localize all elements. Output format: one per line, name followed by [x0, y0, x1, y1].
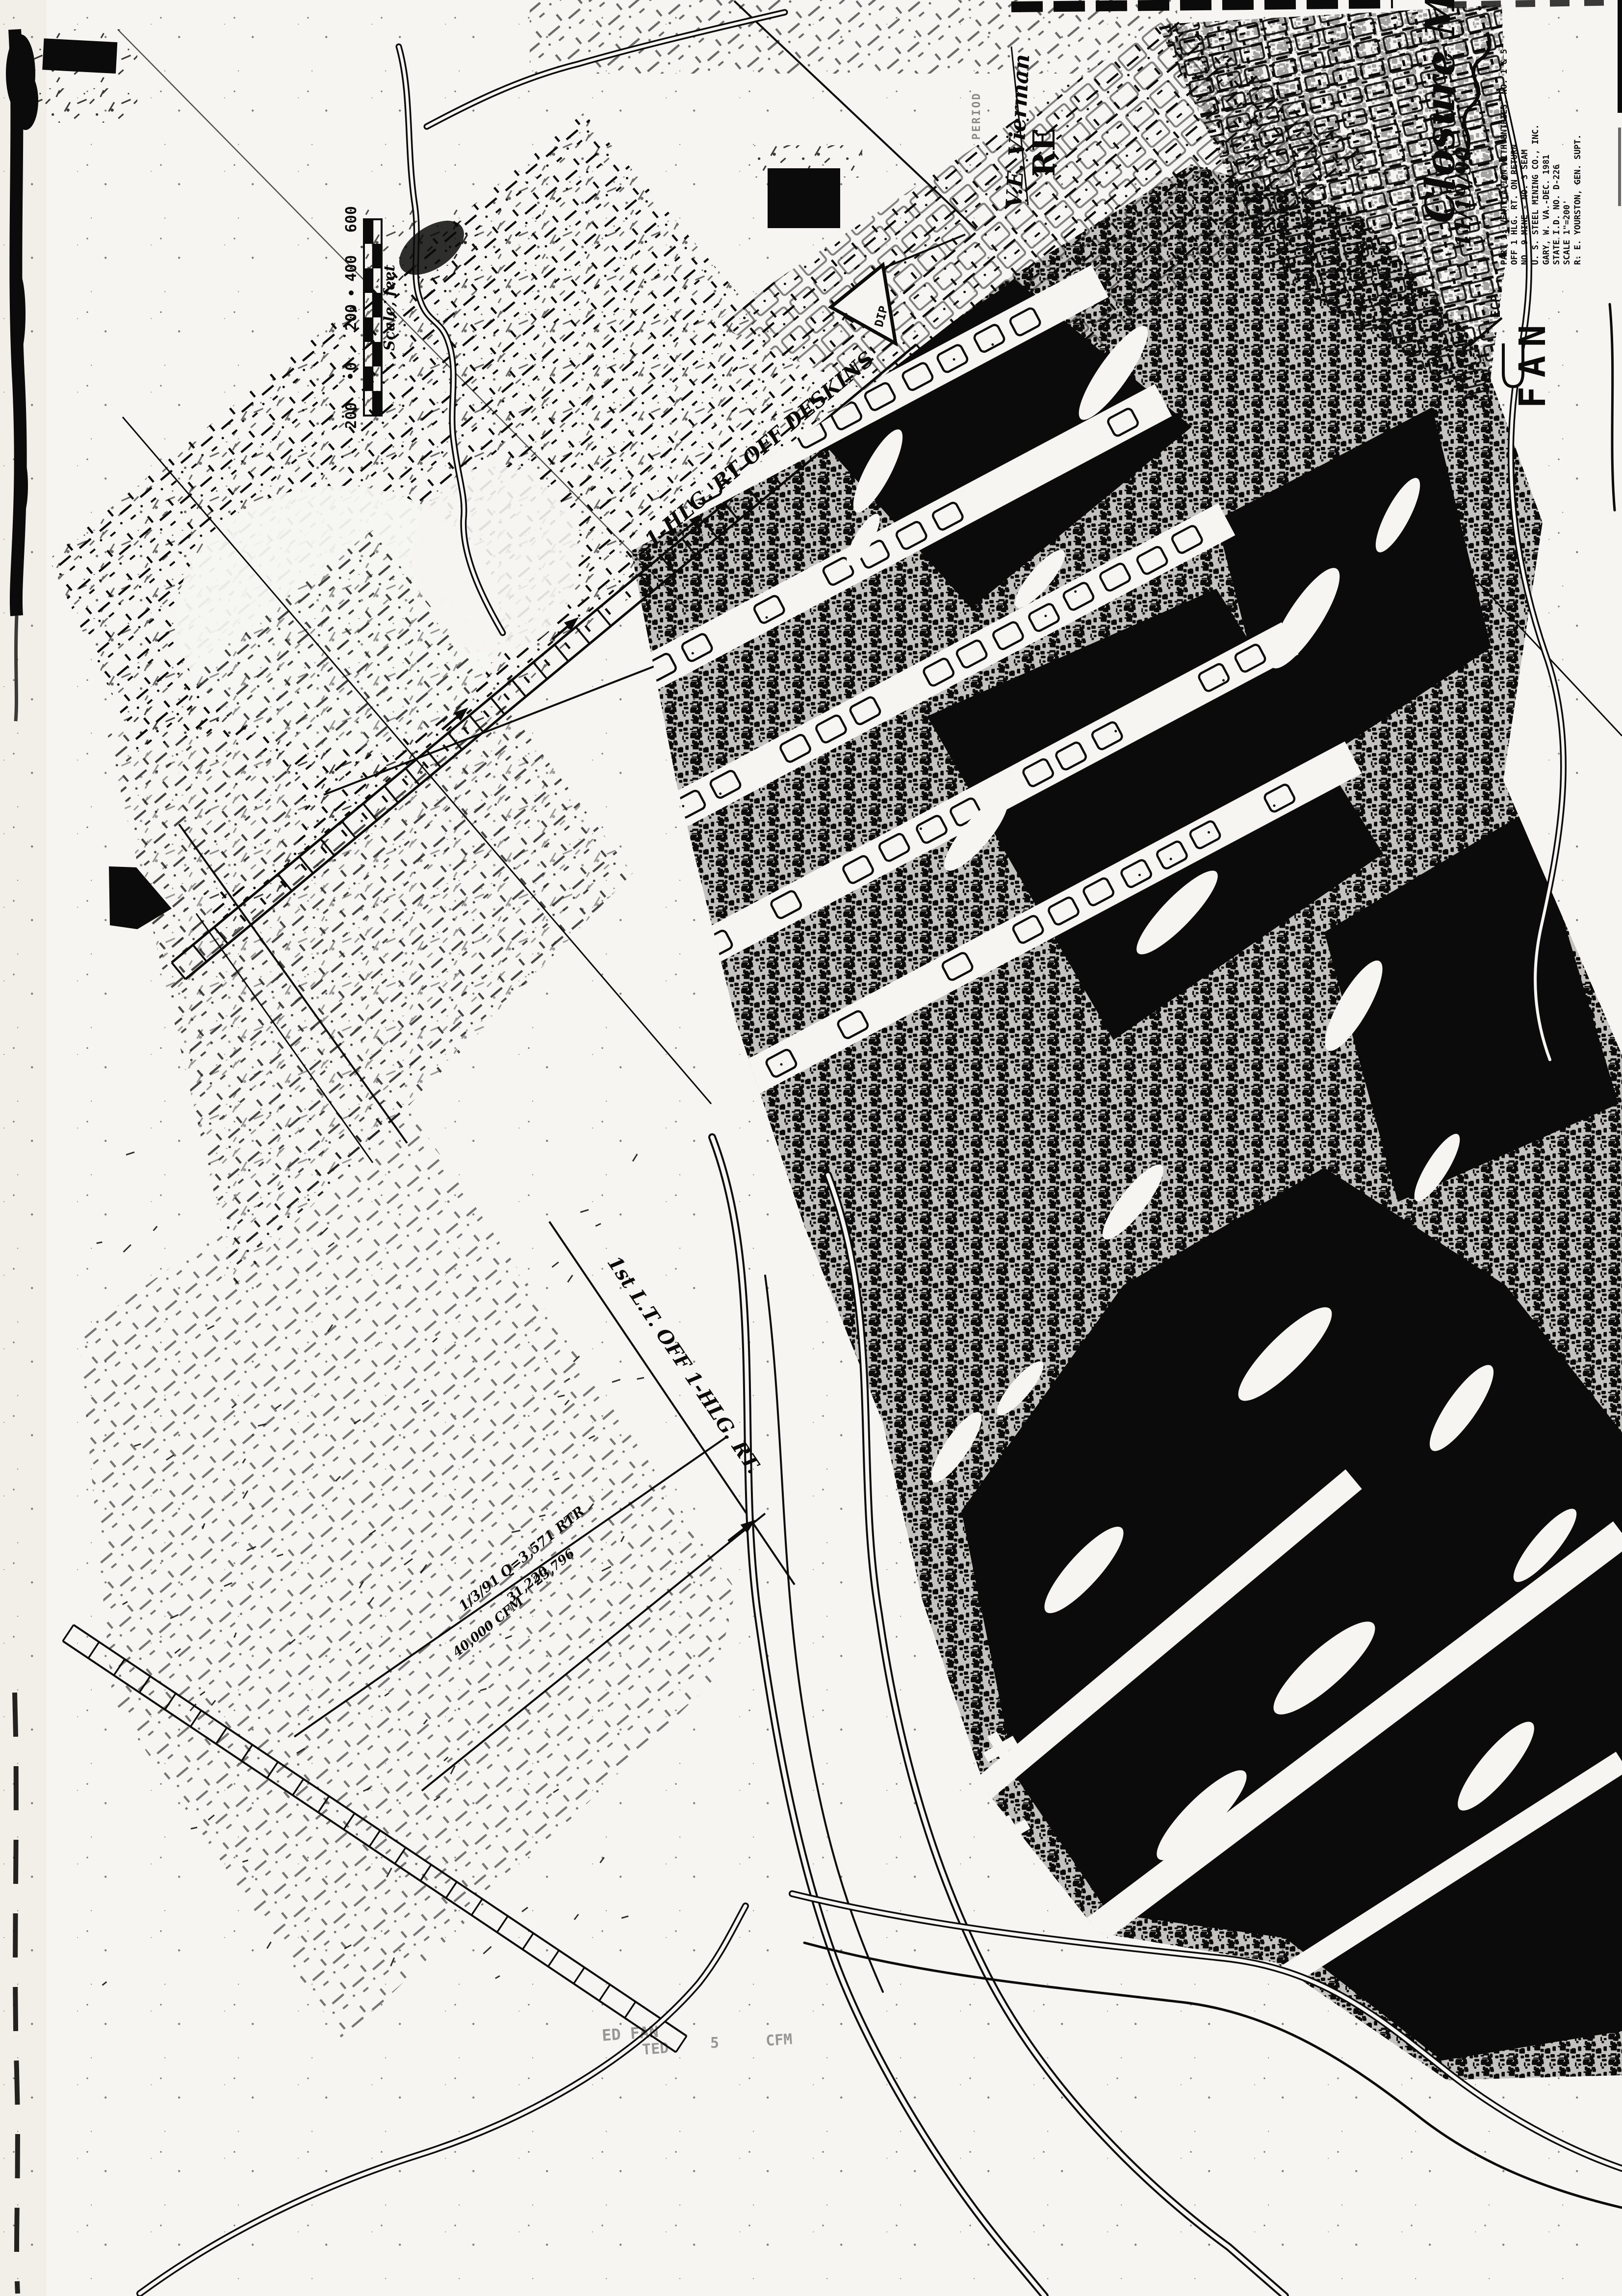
scale-label-400: 400 — [343, 255, 360, 282]
sheet-number: 2 — [780, 185, 829, 211]
scale-dot — [349, 290, 354, 295]
mine-map-sheet: 600 400 200 0 200 Scale, feet 2 DIP T 1-… — [0, 0, 1622, 2296]
scale-label-0: 0 — [343, 362, 360, 371]
scale-dot — [348, 374, 353, 379]
faint-fragment-3: 5 — [710, 2035, 719, 2052]
right-edge-mark — [1618, 128, 1621, 206]
corner-smudge-bar — [42, 38, 117, 74]
scan-blob — [15, 454, 28, 517]
right-edge-mark — [1618, 0, 1622, 113]
faint-fragment-2: TED — [642, 2039, 669, 2059]
title-block-prefix: ECP: — [1489, 287, 1503, 318]
map-canvas: 600 400 200 0 200 Scale, feet 2 DIP T 1-… — [0, 0, 1622, 2296]
scan-edge-streak-thin — [16, 616, 17, 721]
faint-stamp: PERIOD — [971, 92, 983, 140]
stamp-partial: RE — [1026, 128, 1062, 177]
title-line-4: U. S. STEEL MINING CO., INC. — [1531, 124, 1541, 265]
title-line-6: STATE I.D. NO. D-226 — [1552, 164, 1562, 265]
top-edge-marks — [1011, 3, 1393, 7]
title-line-2: OFF 1 HLG. RT. ON RETURN — [1510, 144, 1519, 265]
scale-label-200b: 200 — [343, 402, 360, 429]
scan-blob — [12, 272, 26, 356]
title-line-1: PART 1: VENTILATION WITH ENTRIES, NO. 1 … — [1499, 49, 1509, 265]
scale-label-200: 200 — [343, 304, 360, 331]
fan-label: FAN — [1512, 316, 1554, 408]
title-line-7: SCALE 1"=200' — [1562, 200, 1572, 265]
scale-caption: Scale, feet — [381, 264, 398, 351]
scale-label-600: 600 — [343, 206, 360, 233]
title-line-3: NO. 9 MINE - NO. 3 SEAM — [1520, 150, 1530, 265]
faint-fragment-4: CFM — [765, 2031, 793, 2050]
title-line-5: GARY, W. VA.-DEC. 1981 — [1542, 155, 1551, 265]
title-line-8: R. E. YOURSTON, GEN. SUPT. — [1573, 134, 1583, 265]
